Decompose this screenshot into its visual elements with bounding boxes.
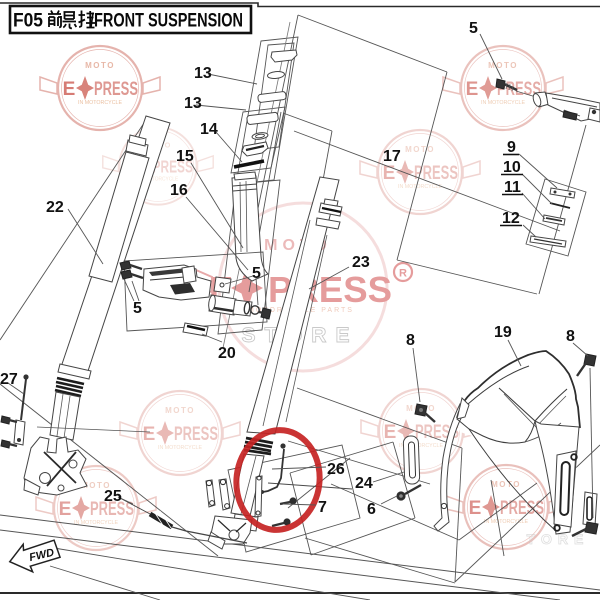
svg-text:8: 8 xyxy=(406,332,415,349)
svg-text:13: 13 xyxy=(194,65,212,82)
svg-text:25: 25 xyxy=(104,488,122,505)
svg-text:5: 5 xyxy=(252,265,261,282)
svg-text:20: 20 xyxy=(218,345,236,362)
svg-text:12: 12 xyxy=(502,210,520,227)
svg-text:22: 22 xyxy=(46,199,64,216)
svg-text:10: 10 xyxy=(503,159,521,176)
svg-text:8: 8 xyxy=(566,328,575,345)
svg-text:16: 16 xyxy=(170,182,188,199)
svg-text:7: 7 xyxy=(318,499,327,516)
svg-text:5: 5 xyxy=(469,20,478,37)
svg-text:11: 11 xyxy=(504,179,521,196)
svg-text:9: 9 xyxy=(507,139,516,156)
svg-text:6: 6 xyxy=(367,501,376,518)
svg-text:14: 14 xyxy=(200,121,218,138)
svg-text:19: 19 xyxy=(494,324,512,341)
svg-text:/FRONT SUSPENSION: /FRONT SUSPENSION xyxy=(90,11,243,32)
svg-text:F05: F05 xyxy=(13,11,43,32)
svg-text:13: 13 xyxy=(184,95,202,112)
svg-text:5: 5 xyxy=(133,300,142,317)
svg-text:27: 27 xyxy=(0,371,18,388)
svg-text:24: 24 xyxy=(355,475,373,492)
svg-text:15: 15 xyxy=(176,148,194,165)
svg-text:26: 26 xyxy=(327,461,345,478)
svg-text:23: 23 xyxy=(352,254,370,271)
svg-text:17: 17 xyxy=(383,148,401,165)
svg-text:R: R xyxy=(399,268,407,280)
